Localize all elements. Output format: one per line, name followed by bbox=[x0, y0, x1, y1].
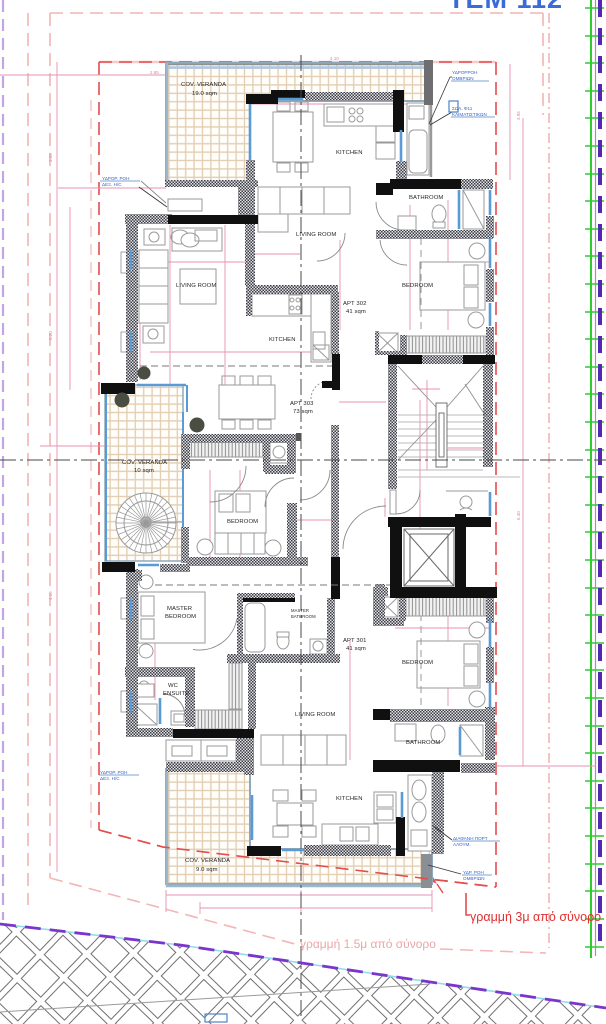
svg-text:MASTER: MASTER bbox=[291, 608, 309, 613]
svg-text:BATHROOM: BATHROOM bbox=[291, 614, 316, 619]
svg-text:KITCHEN: KITCHEN bbox=[269, 337, 296, 343]
svg-text:LIVING ROOM: LIVING ROOM bbox=[176, 283, 216, 289]
svg-text:ΔΕΞ. Η/C: ΔΕΞ. Η/C bbox=[100, 776, 120, 781]
svg-text:ΥΔΡ. ΡΟΗ: ΥΔΡ. ΡΟΗ bbox=[463, 870, 484, 875]
svg-text:ENSUITE: ENSUITE bbox=[163, 691, 189, 697]
svg-text:γραμμή 1.5μ από σύνορο: γραμμή 1.5μ από σύνορο bbox=[300, 937, 436, 951]
svg-text:BATHROOM: BATHROOM bbox=[409, 195, 443, 201]
svg-text:γραμμή 3μ από σύνορο: γραμμή 3μ από σύνορο bbox=[470, 910, 601, 924]
svg-text:73 sqm: 73 sqm bbox=[293, 409, 313, 415]
svg-text:3.95: 3.95 bbox=[516, 111, 521, 120]
svg-text:APT 303: APT 303 bbox=[290, 401, 314, 407]
svg-text:5.20: 5.20 bbox=[48, 331, 53, 340]
svg-text:4.15: 4.15 bbox=[48, 591, 53, 600]
svg-text:LIVING ROOM: LIVING ROOM bbox=[296, 232, 336, 238]
svg-text:10 sqm: 10 sqm bbox=[134, 468, 154, 474]
svg-text:WC: WC bbox=[168, 683, 179, 689]
svg-text:BATHROOM: BATHROOM bbox=[406, 740, 440, 746]
svg-text:COV. VERANDA: COV. VERANDA bbox=[181, 82, 226, 88]
svg-text:9.0 sqm: 9.0 sqm bbox=[196, 867, 218, 873]
svg-text:3.50: 3.50 bbox=[48, 153, 53, 162]
svg-text:BEDROOM: BEDROOM bbox=[402, 660, 433, 666]
svg-text:19.0 sqm: 19.0 sqm bbox=[192, 91, 217, 97]
svg-text:6.40: 6.40 bbox=[516, 511, 521, 520]
svg-text:KITCHEN: KITCHEN bbox=[336, 796, 363, 802]
svg-text:COV. VERANDA: COV. VERANDA bbox=[122, 460, 167, 466]
svg-text:KITCHEN: KITCHEN bbox=[336, 150, 363, 156]
svg-text:2.85: 2.85 bbox=[150, 70, 159, 75]
svg-text:APT 301: APT 301 bbox=[343, 638, 367, 644]
svg-text:BEDROOM: BEDROOM bbox=[165, 614, 196, 620]
svg-text:ΥΔΡΟΡΡΟΗ: ΥΔΡΟΡΡΟΗ bbox=[452, 70, 477, 75]
svg-text:ΟΜΒΡΙΩΝ: ΟΜΒΡΙΩΝ bbox=[452, 76, 474, 81]
svg-text:COV. VERANDA: COV. VERANDA bbox=[185, 858, 230, 864]
svg-text:41 sqm: 41 sqm bbox=[346, 309, 366, 315]
svg-text:ΔΕΞ. Η/C: ΔΕΞ. Η/C bbox=[102, 182, 122, 187]
svg-text:BEDROOM: BEDROOM bbox=[227, 519, 258, 525]
svg-text:ΚΛΙΜΑΤΙΣΤΙΚΩΝ: ΚΛΙΜΑΤΙΣΤΙΚΩΝ bbox=[452, 112, 487, 117]
svg-text:41 sqm: 41 sqm bbox=[346, 646, 366, 652]
svg-text:LIVING ROOM: LIVING ROOM bbox=[295, 712, 335, 718]
svg-text:ΟΜΒΡΙΩΝ: ΟΜΒΡΙΩΝ bbox=[463, 876, 485, 881]
svg-text:ΤΕΜ 112: ΤΕΜ 112 bbox=[448, 0, 563, 14]
svg-text:MASTER: MASTER bbox=[167, 606, 192, 612]
svg-text:ΣΩΛ. Φ11: ΣΩΛ. Φ11 bbox=[452, 106, 473, 111]
svg-text:ΥΔΡΟΡ. ΡΟΗ: ΥΔΡΟΡ. ΡΟΗ bbox=[100, 770, 127, 775]
svg-text:ΑΛΟΥΜ.: ΑΛΟΥΜ. bbox=[453, 842, 471, 847]
svg-text:ΥΔΡΟΡ. ΡΟΗ: ΥΔΡΟΡ. ΡΟΗ bbox=[102, 176, 129, 181]
svg-text:APT 302: APT 302 bbox=[343, 301, 367, 307]
svg-text:4.10: 4.10 bbox=[330, 56, 339, 61]
svg-text:ΔΙΑΦΑΝΗ ΠΟΡΤ: ΔΙΑΦΑΝΗ ΠΟΡΤ bbox=[453, 836, 488, 841]
svg-text:BEDROOM: BEDROOM bbox=[402, 283, 433, 289]
